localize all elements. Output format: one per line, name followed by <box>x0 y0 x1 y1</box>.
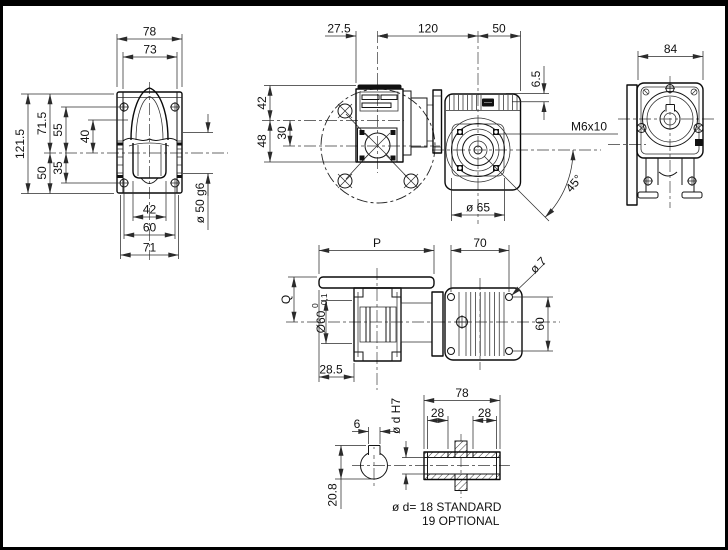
dim-front-width-42: 42 <box>143 203 157 217</box>
output-flange-plate <box>319 277 434 288</box>
dim-flange-p: P <box>373 236 381 250</box>
dim-top-30: 30 <box>275 126 289 140</box>
note-shaft-optional: 19 OPTIONAL <box>422 514 500 528</box>
dim-top-48: 48 <box>255 134 269 148</box>
dim-flange-q: Q <box>279 295 293 304</box>
dim-shaft-28a: 28 <box>431 406 445 420</box>
dim-top-42: 42 <box>255 96 269 110</box>
dim-side-84: 84 <box>664 42 678 56</box>
dim-front-width-78: 78 <box>143 25 157 39</box>
page-border <box>0 2 728 549</box>
dim-top-6-5: 6.5 <box>529 70 543 87</box>
label-shaft-bore: ø d H7 <box>389 398 403 434</box>
drawing-page: 78 73 121.5 71.5 50 55 35 40 42 60 71 ø … <box>0 0 728 550</box>
dim-key-height-20-8: 20.8 <box>326 483 340 507</box>
dim-top-flange-65: ø 65 <box>466 201 490 215</box>
dim-front-height-40: 40 <box>78 130 92 144</box>
dim-front-height-35: 35 <box>51 161 65 175</box>
dim-front-height-71-5: 71.5 <box>35 111 49 135</box>
input-flange-plate <box>433 90 442 153</box>
logo-plate <box>695 139 703 146</box>
note-shaft-standard: ø d= 18 STANDARD <box>392 500 502 514</box>
dim-front-width-60: 60 <box>143 221 157 235</box>
dim-flange-bore-tol-lower: -0,1 <box>319 293 329 308</box>
label-thread-m6x10: M6x10 <box>571 120 607 134</box>
dim-shaft-78: 78 <box>455 386 469 400</box>
dim-front-width-71: 71 <box>143 241 157 255</box>
shaft-section-view: 6 20.8 78 28 28 ø d H7 ø d= 18 STANDARD … <box>326 386 511 528</box>
dim-shaft-28b: 28 <box>478 406 492 420</box>
dim-top-120: 120 <box>418 22 438 36</box>
dim-flange-hole-dia: ø 7 <box>527 254 549 276</box>
dim-top-50: 50 <box>492 22 506 36</box>
dim-key-width-6: 6 <box>354 417 361 431</box>
dim-flange-bore: Ø60 <box>314 310 328 333</box>
dim-flange-28-5: 28.5 <box>319 363 343 377</box>
dim-top-27-5: 27.5 <box>327 22 351 36</box>
flange-fins <box>459 292 504 356</box>
flange-view: P 70 ø 7 Q Ø60 0 -0,1 60 28.5 <box>279 236 560 390</box>
dim-flange-70: 70 <box>473 236 487 250</box>
dim-front-height-121-5: 121.5 <box>13 129 27 159</box>
top-view: 27.5 120 50 42 48 30 6.5 M6x10 45° ø 65 <box>255 22 618 225</box>
flange-motor-block <box>354 288 401 361</box>
dim-front-width-73: 73 <box>143 43 157 57</box>
front-view: 78 73 121.5 71.5 50 55 35 40 42 60 71 ø … <box>13 25 228 261</box>
side-view: 84 <box>608 42 716 208</box>
dim-front-shaft-dia: ø 50 g6 <box>193 182 207 223</box>
dim-flange-bore-group: Ø60 0 -0,1 <box>310 293 329 333</box>
dim-front-height-55: 55 <box>51 123 65 137</box>
technical-drawing: 78 73 121.5 71.5 50 55 35 40 42 60 71 ø … <box>0 0 728 550</box>
dim-flange-60: 60 <box>533 317 547 331</box>
dim-front-height-50: 50 <box>35 166 49 180</box>
dim-top-45deg: 45° <box>563 172 586 195</box>
side-flange-plate <box>627 85 637 205</box>
